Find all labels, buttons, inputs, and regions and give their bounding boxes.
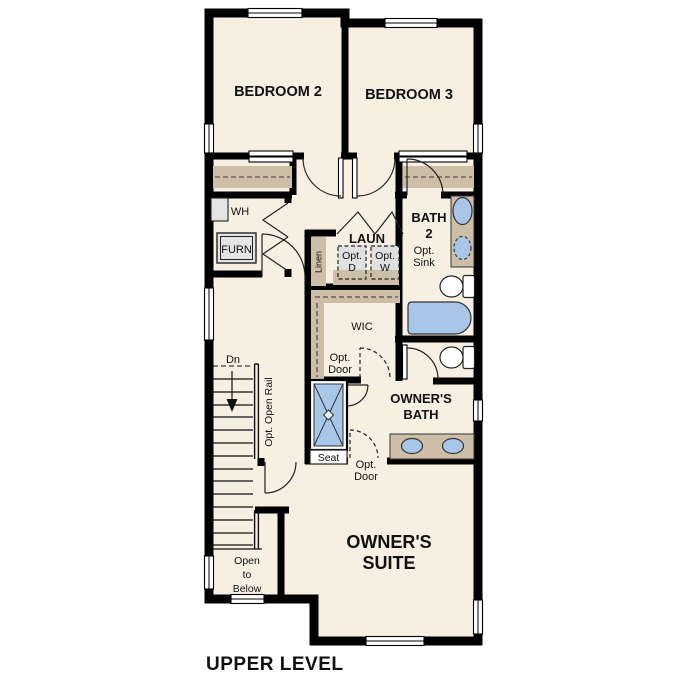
suite-opt-door-label-1: Opt.: [356, 459, 377, 471]
opt-dryer-label-2: D: [348, 262, 356, 274]
owners-bath-label-2: BATH: [403, 407, 438, 422]
open-to-below-label-1: Open: [234, 555, 260, 567]
bathtub: [408, 302, 471, 334]
water-heater-label: WH: [231, 206, 249, 218]
bedroom2-closet-sliding-door: [249, 151, 293, 162]
bath2-sink: [453, 198, 472, 225]
floor-plan-svg: BEDROOM 2 BEDROOM 3 WH FURN LAUN Opt. D …: [0, 0, 687, 687]
bedroom3-label: BEDROOM 3: [365, 87, 453, 103]
bath2-label-1: BATH: [411, 210, 446, 225]
seat-label: Seat: [318, 452, 340, 464]
owners-bath-label-1: OWNER'S: [390, 391, 452, 406]
stairs-down-label: Dn: [226, 354, 240, 366]
water-closet-toilet: [440, 347, 475, 369]
opt-open-rail-label: Opt. Open Rail: [263, 377, 275, 446]
bedroom3-closet-sliding-door: [399, 151, 467, 162]
opt-sink-label-1: Opt.: [414, 245, 435, 257]
plan-title: UPPER LEVEL: [206, 654, 343, 675]
shower: [310, 380, 347, 450]
bath2-optional-sink: [454, 237, 471, 260]
wic-opt-door-label-1: Opt.: [330, 352, 351, 364]
suite-opt-door-label-2: Door: [354, 471, 378, 483]
owners-suite-label-1: OWNER'S: [346, 532, 431, 552]
opt-sink-label-2: Sink: [413, 257, 435, 269]
laundry-label: LAUN: [349, 231, 385, 246]
wic-label: WIC: [351, 321, 372, 333]
floor-plan-page: BEDROOM 2 BEDROOM 3 WH FURN LAUN Opt. D …: [0, 0, 687, 687]
bath2-toilet: [440, 276, 475, 298]
open-to-below-label-2: to: [243, 569, 252, 581]
linen-label: Linen: [314, 251, 324, 273]
water-heater: [211, 198, 228, 221]
owners-bath-sink-left: [402, 439, 423, 454]
owners-bath-sink-right: [443, 439, 464, 454]
furnace-label: FURN: [221, 244, 252, 256]
bath2-label-2: 2: [425, 226, 432, 241]
opt-washer-label-2: W: [380, 262, 390, 274]
open-to-below-label-3: Below: [233, 583, 262, 595]
owners-suite-label-2: SUITE: [362, 553, 415, 573]
wic-opt-door-label-2: Door: [328, 364, 352, 376]
opt-washer-label-1: Opt.: [375, 250, 395, 262]
bedroom2-label: BEDROOM 2: [234, 84, 322, 100]
opt-dryer-label-1: Opt.: [342, 250, 362, 262]
